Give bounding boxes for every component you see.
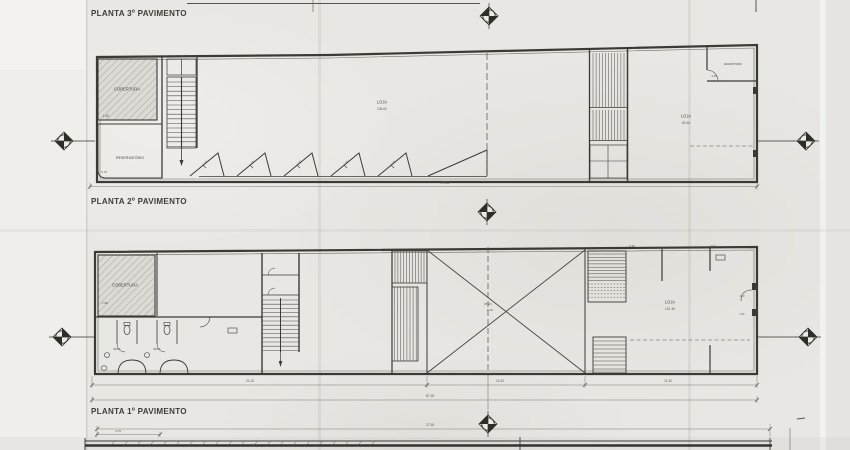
level-value: 0.00	[487, 308, 493, 311]
dim-label-cobertura-f1: 1.80	[102, 301, 108, 304]
dim-label-top-a: 6.35	[629, 245, 634, 248]
room-label-escritorio: ESCRITÓRIO	[724, 62, 742, 65]
area-label-loja-right-f2: 82.46	[682, 121, 690, 125]
room-label-sanit-a: SANIT.	[113, 348, 121, 351]
dim-label-ground-total: 27.35	[426, 423, 434, 427]
labels-layer: PLANTA 3º PAVIMENTO PLANTA 2º PAVIMENTO …	[0, 0, 850, 450]
plan-title-floor3: PLANTA 3º PAVIMENTO	[91, 8, 187, 18]
dim-label-escritorio: 3.00	[711, 75, 716, 78]
room-label-reservatorio: RESERVATÓRIO	[116, 156, 144, 160]
room-label-cobertura-f2: COBERTURA	[114, 87, 140, 92]
area-label-loja-center: 135.00	[377, 107, 387, 111]
level-label: PISO	[484, 302, 491, 305]
dim-label-cobertura-f2: 1.80	[103, 114, 109, 118]
sawtooth-step-label: 1.00	[249, 160, 255, 166]
sawtooth-step-label: 1.00	[390, 160, 396, 166]
sawtooth-step-label: 1.00	[296, 160, 302, 166]
dim-label-right-bay: 11.30	[664, 379, 672, 383]
dim-label-ground-left: 4.75	[115, 429, 121, 432]
dim-label-total-f1: 87.35	[426, 394, 435, 398]
dim-label-center-bay: 14.30	[496, 379, 504, 383]
plan-title-floor2: PLANTA 2º PAVIMENTO	[91, 196, 187, 206]
sawtooth-step-label: 1.00	[343, 160, 349, 166]
dim-label-side-b: 1.00	[740, 313, 745, 316]
dim-label-reservatorio: 5.70	[101, 170, 107, 173]
room-label-cobertura-f1: COBERTURA	[112, 283, 138, 288]
room-label-loja-center: LOJA	[377, 100, 387, 105]
blueprint-sheet: PLANTA 3º PAVIMENTO PLANTA 2º PAVIMENTO …	[0, 0, 850, 450]
dim-label-side-a: 4.50	[740, 295, 745, 298]
room-label-sanit-b: SANIT.	[153, 348, 161, 351]
area-label-loja-f1: 191.36	[665, 307, 675, 311]
plan-title-floor1: PLANTA 1º PAVIMENTO	[91, 406, 187, 416]
sawtooth-step-label: 1.00	[202, 160, 208, 166]
dim-label-total-f2: 27.35	[441, 181, 450, 185]
room-label-loja-right-f2: LOJA	[681, 114, 691, 119]
dim-label-top-b: 5.00	[710, 245, 715, 248]
room-label-loja-f1: LOJA	[665, 300, 675, 305]
dim-label-left-bay: 21.20	[246, 379, 254, 383]
